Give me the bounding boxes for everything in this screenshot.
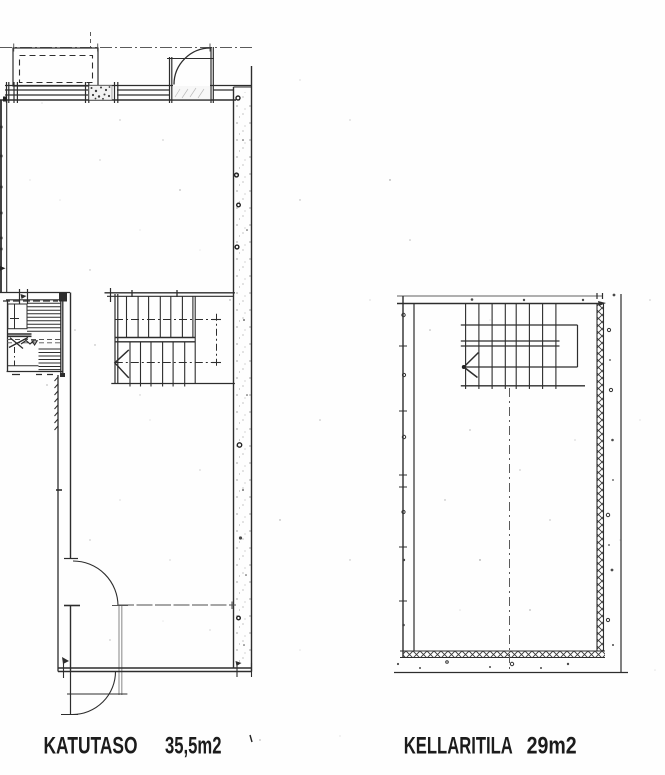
svg-text:KELLARITILA: KELLARITILA	[404, 734, 513, 760]
svg-text:35,5m2: 35,5m2	[165, 734, 222, 760]
svg-text:KATUTASO: KATUTASO	[44, 734, 138, 760]
svg-text:29m2: 29m2	[527, 734, 577, 760]
